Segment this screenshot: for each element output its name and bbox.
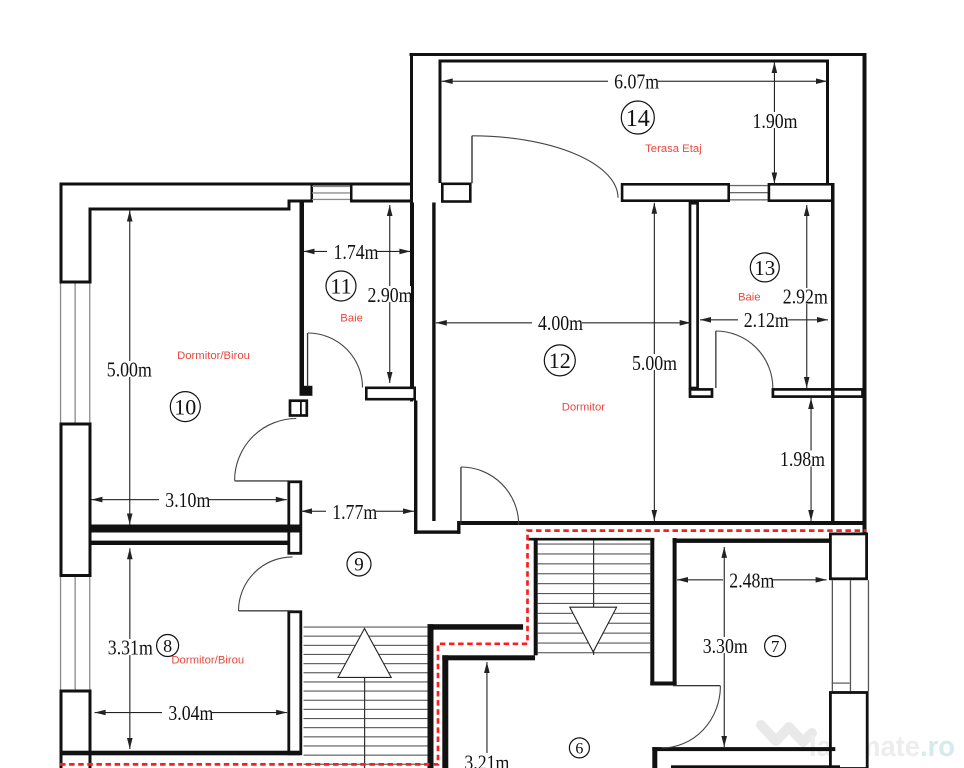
svg-text:Dormitor/Birou: Dormitor/Birou bbox=[171, 654, 244, 666]
svg-text:12: 12 bbox=[549, 348, 571, 373]
svg-text:2.90m: 2.90m bbox=[368, 283, 413, 307]
svg-text:Baie: Baie bbox=[738, 291, 761, 303]
svg-text:Terasa Etaj: Terasa Etaj bbox=[645, 143, 702, 155]
svg-text:1.90m: 1.90m bbox=[753, 109, 798, 133]
svg-text:3.04m: 3.04m bbox=[168, 701, 213, 725]
svg-text:11: 11 bbox=[330, 274, 351, 299]
svg-text:3.31m: 3.31m bbox=[108, 636, 153, 660]
svg-text:3.10m: 3.10m bbox=[165, 488, 210, 512]
svg-text:1.98m: 1.98m bbox=[780, 447, 825, 471]
svg-text:6: 6 bbox=[575, 741, 583, 758]
svg-text:8: 8 bbox=[163, 636, 172, 656]
svg-text:Baie: Baie bbox=[340, 312, 363, 324]
svg-text:14: 14 bbox=[626, 106, 650, 132]
svg-text:7: 7 bbox=[771, 637, 780, 656]
svg-text:2.48m: 2.48m bbox=[729, 568, 774, 592]
svg-text:6.07m: 6.07m bbox=[614, 70, 659, 94]
svg-text:1.77m: 1.77m bbox=[332, 500, 377, 524]
svg-text:5.00m: 5.00m bbox=[632, 351, 677, 375]
svg-text:3.21m: 3.21m bbox=[464, 750, 509, 768]
svg-text:Dormitor/Birou: Dormitor/Birou bbox=[177, 350, 250, 362]
svg-text:1.74m: 1.74m bbox=[334, 240, 379, 264]
svg-text:3.30m: 3.30m bbox=[703, 634, 748, 658]
svg-text:2.92m: 2.92m bbox=[783, 285, 828, 309]
svg-text:2.12m: 2.12m bbox=[744, 308, 789, 332]
svg-text:9: 9 bbox=[354, 555, 364, 576]
svg-text:5.00m: 5.00m bbox=[107, 358, 152, 382]
svg-text:13: 13 bbox=[754, 256, 775, 280]
svg-text:4.00m: 4.00m bbox=[538, 311, 583, 335]
svg-text:Dormitor: Dormitor bbox=[562, 401, 606, 413]
svg-text:10: 10 bbox=[174, 394, 196, 419]
